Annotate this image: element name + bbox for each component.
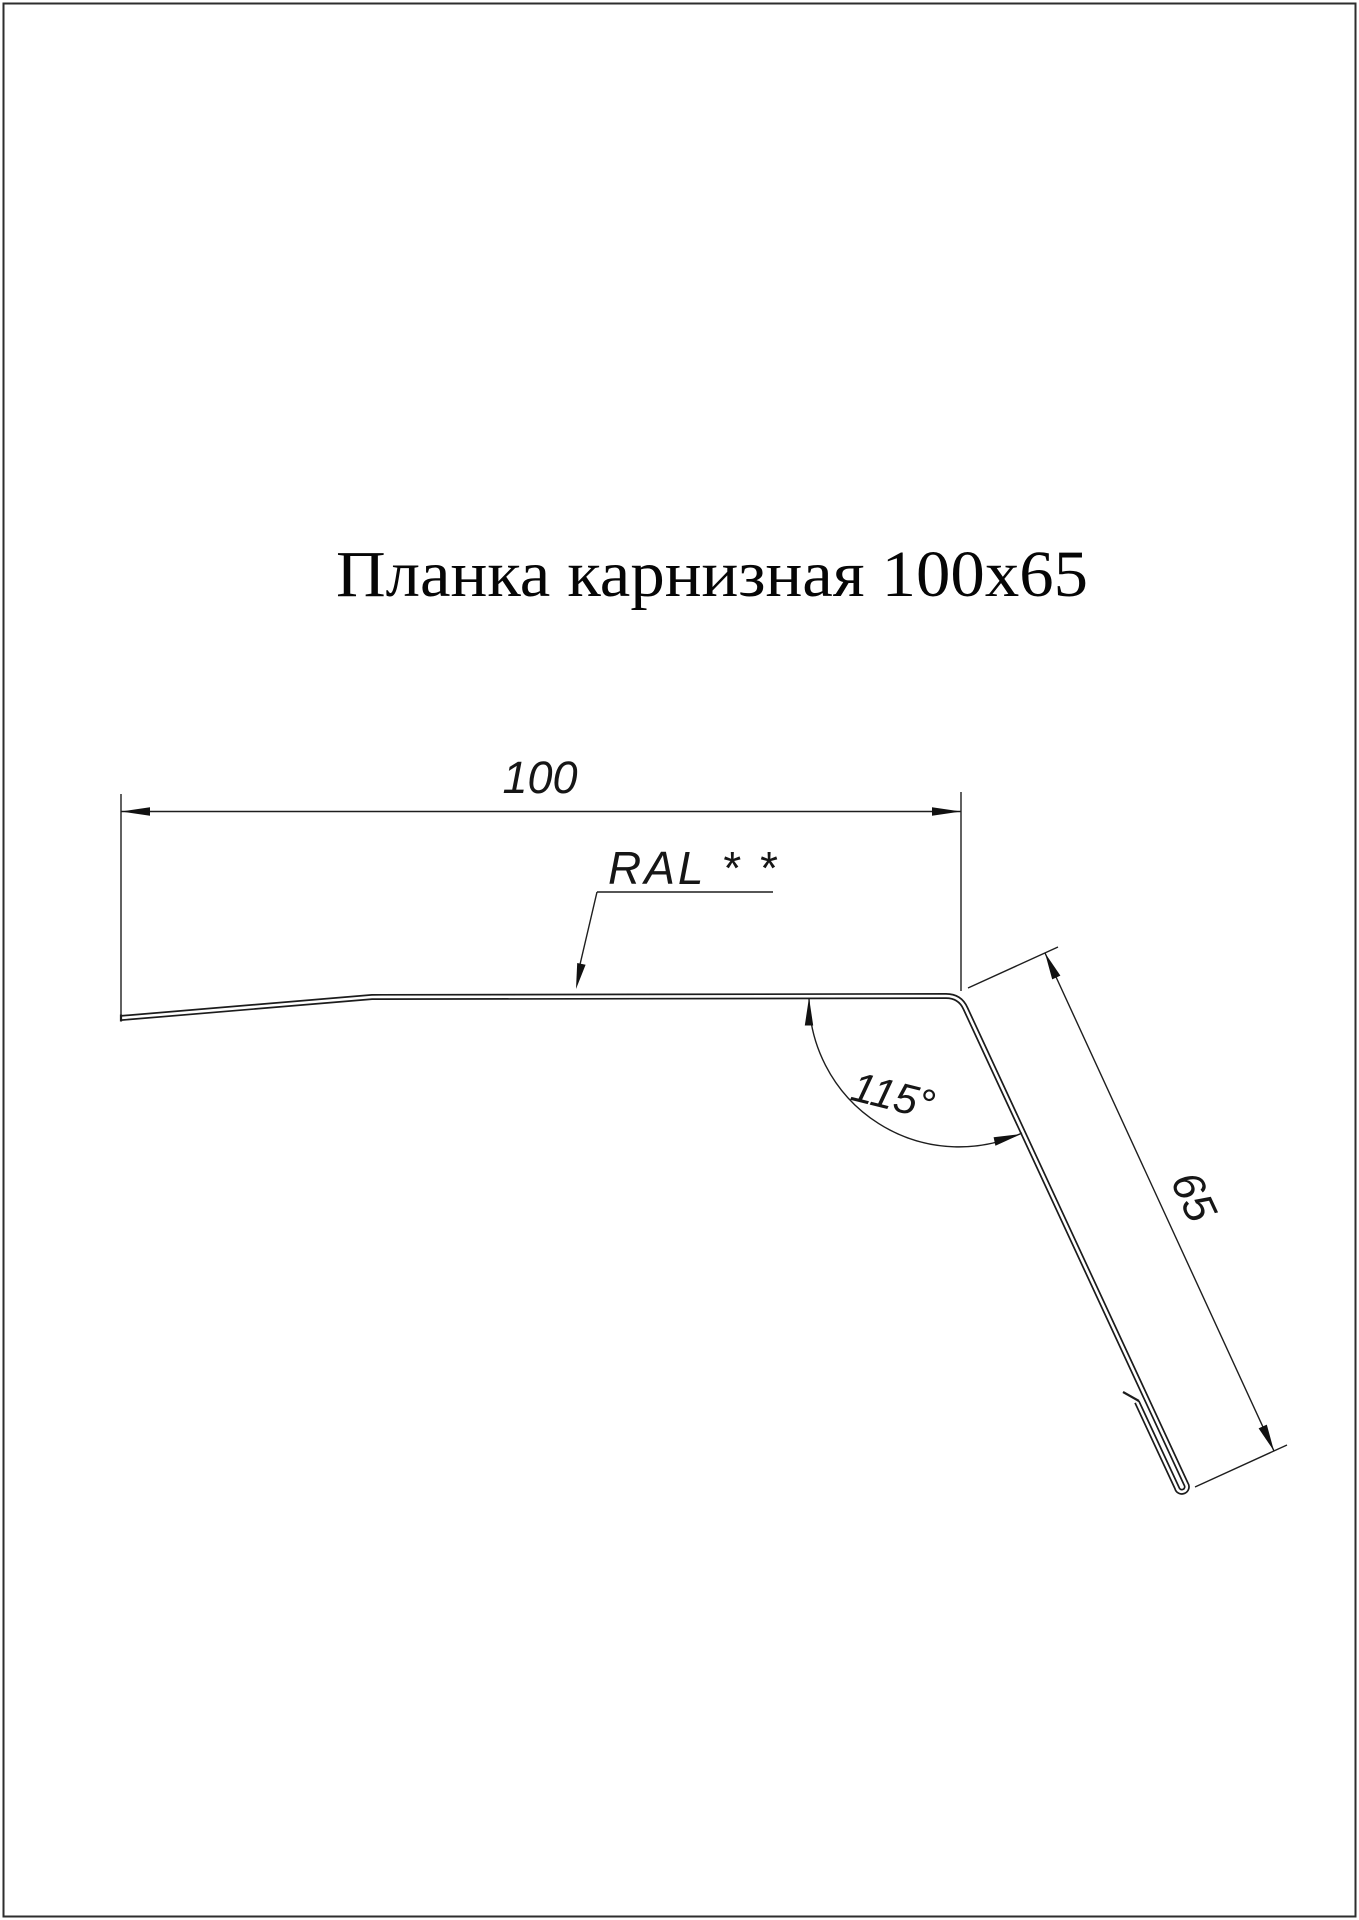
drawing-page: Планка карнизная 100x65 100 RAL * * 115°… bbox=[0, 0, 1359, 1920]
page-border bbox=[4, 4, 1356, 1917]
dim-65-arrow-top bbox=[1045, 953, 1060, 979]
dim-65-label: 65 bbox=[1161, 1164, 1226, 1230]
dim-65-extension-top bbox=[968, 947, 1058, 988]
profile-sheet-core bbox=[121, 996, 1187, 1492]
page-title: Планка карнизная 100x65 bbox=[336, 538, 1088, 611]
angle-arrow-top bbox=[805, 998, 813, 1026]
angle-label: 115° bbox=[847, 1063, 940, 1129]
dim-100-arrow-left bbox=[121, 807, 150, 816]
dim-65-line bbox=[1045, 953, 1274, 1451]
dim-100-label: 100 bbox=[502, 752, 577, 803]
profile-outline bbox=[121, 996, 1187, 1492]
angle-arrow-bottom bbox=[994, 1134, 1021, 1146]
dim-65-arrow-bottom bbox=[1259, 1425, 1274, 1451]
dim-100-arrow-right bbox=[932, 807, 961, 816]
ral-label: RAL * * bbox=[608, 842, 779, 894]
ral-leader-line bbox=[578, 892, 597, 973]
hem-edge-tick bbox=[1123, 1392, 1139, 1401]
technical-drawing: Планка карнизная 100x65 100 RAL * * 115°… bbox=[0, 0, 1359, 1920]
dim-65-extension-bottom bbox=[1195, 1445, 1287, 1487]
ral-leader-arrow bbox=[576, 963, 586, 989]
